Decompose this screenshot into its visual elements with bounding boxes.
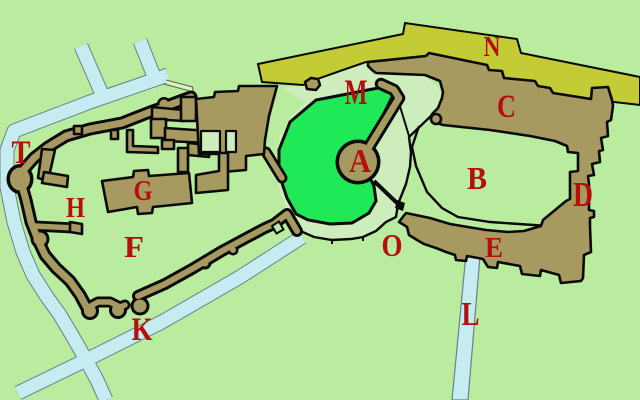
svg-text:M: M	[345, 72, 368, 112]
svg-text:T: T	[12, 135, 31, 171]
svg-text:O: O	[382, 227, 403, 263]
svg-text:G: G	[134, 176, 153, 207]
svg-text:B: B	[467, 160, 487, 196]
svg-text:D: D	[573, 175, 593, 214]
svg-text:L: L	[462, 296, 480, 333]
svg-text:N: N	[484, 31, 501, 63]
svg-text:E: E	[485, 233, 503, 264]
svg-text:F: F	[124, 229, 144, 264]
svg-text:K: K	[132, 312, 153, 348]
svg-text:C: C	[497, 89, 516, 125]
svg-text:A: A	[349, 143, 371, 180]
svg-text:H: H	[66, 192, 85, 224]
